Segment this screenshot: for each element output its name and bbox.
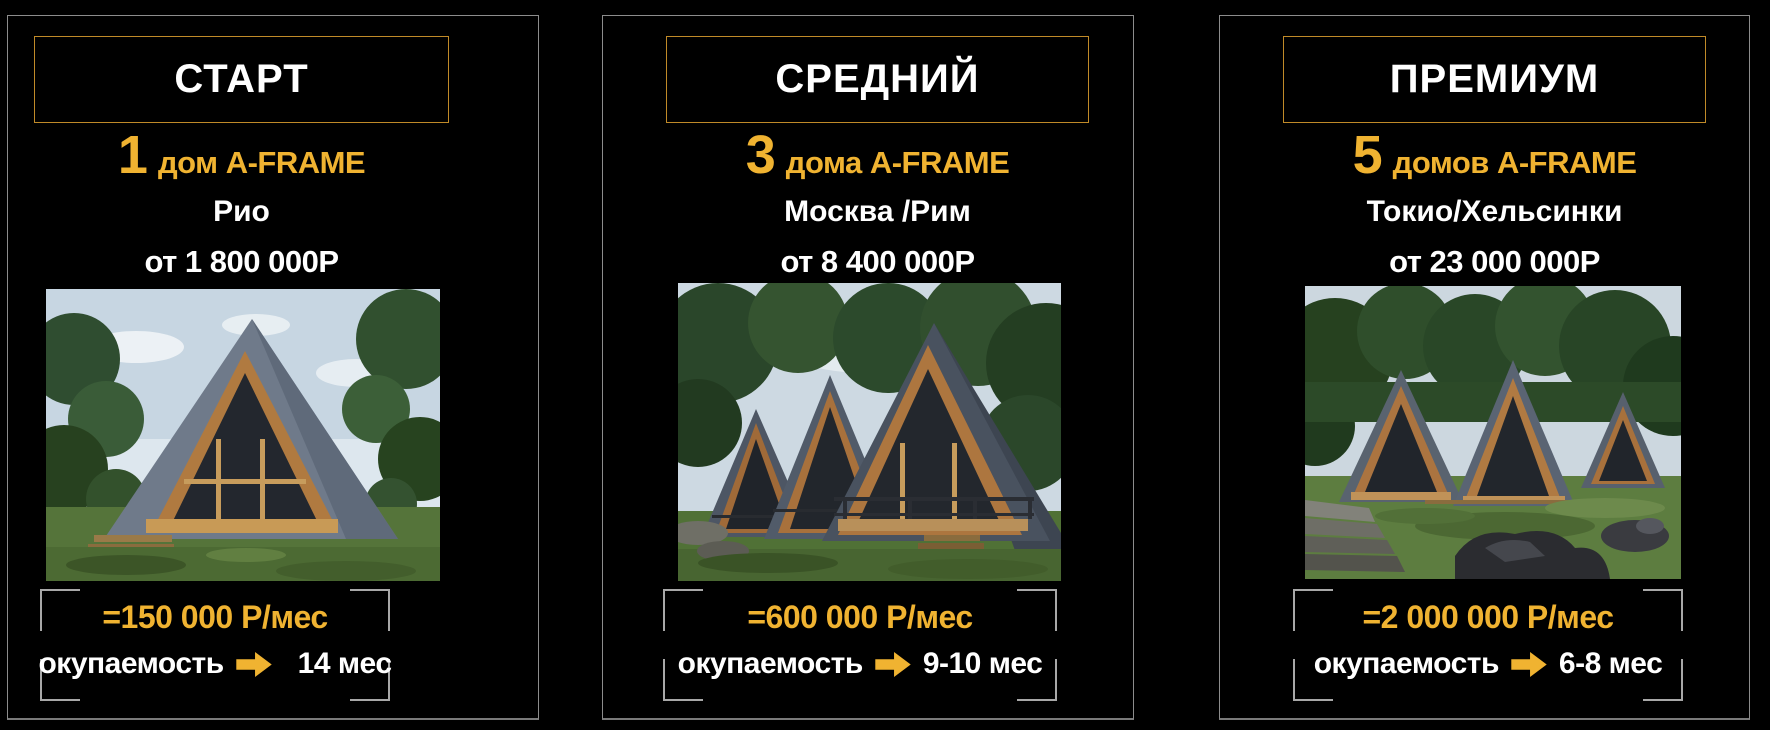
monthly-income: =150 000 Р/мес [40,599,390,636]
pricing-poster: СТАРТ 1 дом A-FRAME Рио от 1 800 000Р [0,0,1770,730]
payback-label: окупаемость [678,647,863,681]
payback-line: окупаемость 6-8 мес [1293,647,1683,681]
count-line: 1 дом A-FRAME [34,128,449,190]
payback-value: 9-10 мес [923,647,1043,681]
card-medium: СРЕДНИЙ 3 дома A-FRAME Москва /Рим от 8 … [602,15,1134,720]
price-label: от 8 400 000Р [666,244,1089,280]
card-title: СТАРТ [174,57,308,102]
payback-line: окупаемость 14 мес [40,647,390,681]
payback-label: окупаемость [38,647,223,681]
monthly-income: =2 000 000 Р/мес [1293,599,1683,636]
card-title: ПРЕМИУМ [1390,57,1599,102]
photo-aframe-five [1305,286,1681,579]
arrow-right-icon [236,652,272,677]
card-title-box: СТАРТ [34,36,449,123]
card-title-box: ПРЕМИУМ [1283,36,1706,123]
payback-label: окупаемость [1314,647,1499,681]
card-start: СТАРТ 1 дом A-FRAME Рио от 1 800 000Р [7,15,539,720]
house-count: 3 [746,128,776,182]
summary-bracket: =150 000 Р/мес окупаемость 14 мес [40,589,390,701]
location-label: Токио/Хельсинки [1283,194,1706,230]
card-premium: ПРЕМИУМ 5 домов A-FRAME Токио/Хельсинки … [1219,15,1750,720]
house-count: 1 [118,128,148,182]
arrow-right-icon [1511,652,1547,677]
photo-aframe-single [46,289,440,581]
photo-aframe-three [678,283,1061,581]
summary-bracket: =2 000 000 Р/мес окупаемость 6-8 мес [1293,589,1683,701]
payback-value: 14 мес [298,647,392,681]
price-label: от 23 000 000Р [1283,244,1706,280]
count-line: 5 домов A-FRAME [1283,128,1706,190]
card-title: СРЕДНИЙ [775,57,979,102]
price-label: от 1 800 000Р [34,244,449,280]
house-count-label: дома A-FRAME [786,145,1010,181]
location-label: Москва /Рим [666,194,1089,230]
house-count: 5 [1353,128,1383,182]
card-title-box: СРЕДНИЙ [666,36,1089,123]
house-count-label: домов A-FRAME [1393,145,1637,181]
summary-bracket: =600 000 Р/мес окупаемость 9-10 мес [663,589,1057,701]
house-count-label: дом A-FRAME [158,145,365,181]
payback-line: окупаемость 9-10 мес [663,647,1057,681]
monthly-income: =600 000 Р/мес [663,599,1057,636]
location-label: Рио [34,194,449,230]
payback-value: 6-8 мес [1559,647,1662,681]
arrow-right-icon [875,652,911,677]
count-line: 3 дома A-FRAME [666,128,1089,190]
